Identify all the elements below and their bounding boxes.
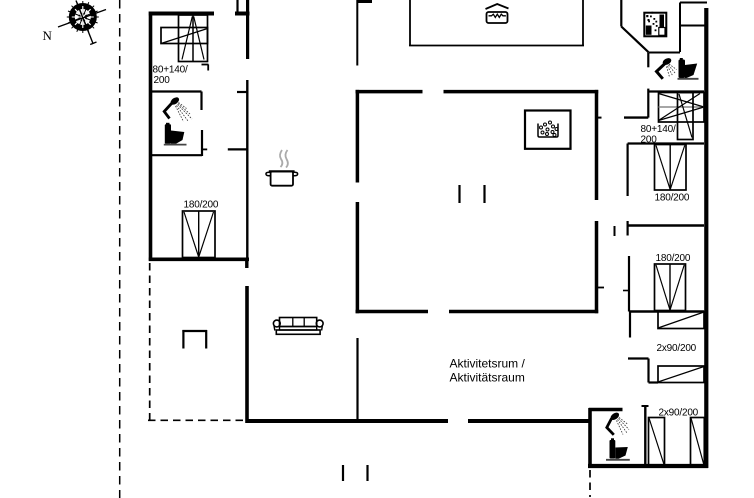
svg-text:Aktivitetsrum /: Aktivitetsrum / xyxy=(450,357,526,371)
svg-text:200: 200 xyxy=(154,75,171,86)
svg-text:80+140/: 80+140/ xyxy=(641,124,676,135)
svg-text:N: N xyxy=(43,28,53,43)
svg-text:180/200: 180/200 xyxy=(656,253,691,264)
svg-text:80+140/: 80+140/ xyxy=(153,65,188,76)
svg-text:2x90/200: 2x90/200 xyxy=(657,343,697,354)
svg-text:Aktivitätsraum: Aktivitätsraum xyxy=(450,371,525,385)
svg-text:180/200: 180/200 xyxy=(184,200,219,211)
svg-text:180/200: 180/200 xyxy=(655,193,690,204)
